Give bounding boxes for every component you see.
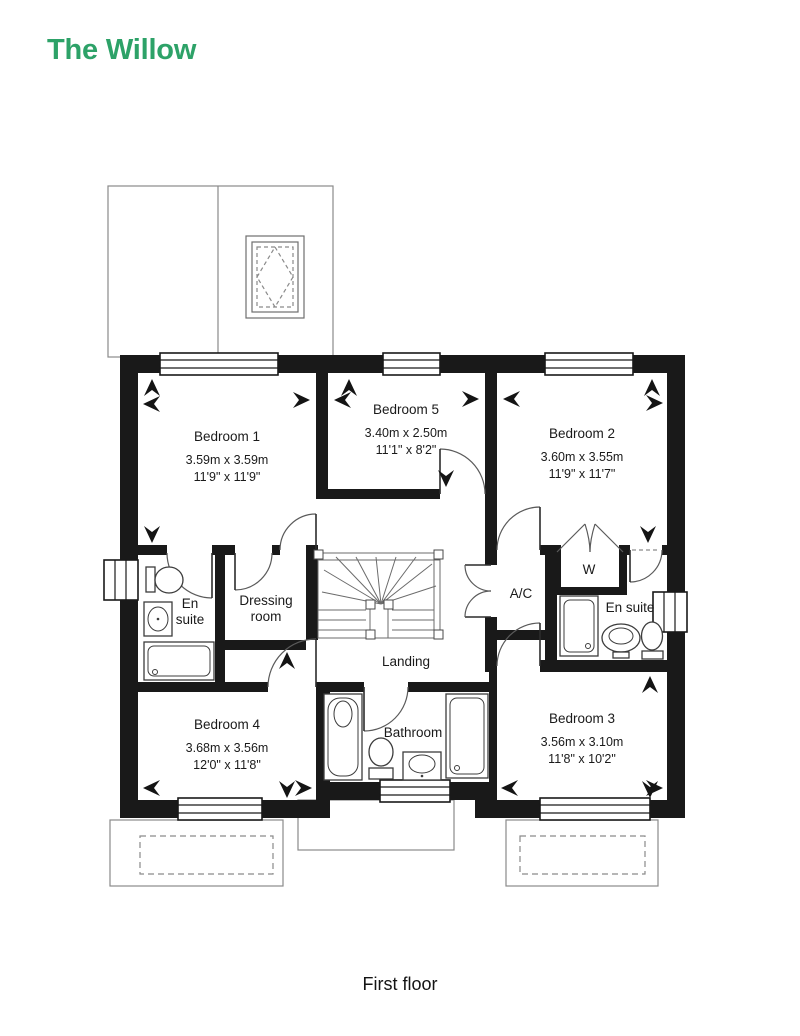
bathroom-shower-symbol (446, 694, 488, 778)
window-bedroom4 (178, 798, 262, 820)
bedroom5-imperial: 11'1" x 8'2" (376, 443, 437, 457)
bedroom5-metric: 3.40m x 2.50m (365, 426, 448, 440)
door-ensuite-right (630, 550, 662, 582)
bedroom3-imperial: 11'8" x 10'2" (548, 752, 616, 766)
window-bedroom2 (545, 353, 633, 375)
ensuite-right-shower-symbol (560, 596, 598, 656)
bedroom1-imperial: 11'9" x 11'9" (194, 470, 261, 484)
door-dressing-room (235, 553, 272, 590)
bedroom2-imperial: 11'9" x 11'7" (549, 467, 616, 481)
ensuite-left-shower-symbol (144, 642, 214, 680)
bedroom4-label: Bedroom 4 (194, 717, 261, 732)
ensuite-right-toilet-symbol (642, 622, 664, 659)
door-bedroom2 (497, 507, 540, 550)
ensuite-left-label-line2: suite (176, 612, 205, 627)
airing-cupboard-label: A/C (510, 586, 533, 601)
bathroom-label: Bathroom (384, 725, 443, 740)
floor-caption: First floor (0, 974, 800, 995)
roof-outline (108, 186, 333, 357)
bedroom4-metric: 3.68m x 3.56m (186, 741, 269, 755)
bedroom4-imperial: 12'0" x 11'8" (193, 758, 261, 772)
ensuite-left-basin-symbol (144, 602, 172, 636)
bedroom1-metric: 3.59m x 3.59m (186, 453, 269, 467)
bedroom1-label: Bedroom 1 (194, 429, 260, 444)
ensuite-right-basin-symbol (602, 624, 640, 658)
window-ensuite-left (104, 560, 138, 600)
window-bedroom5 (383, 353, 440, 375)
dressing-room-label-line2: room (251, 609, 282, 624)
bathroom-bath-symbol (324, 694, 362, 780)
bathroom-toilet-symbol (369, 738, 393, 779)
bathroom-basin-symbol (403, 752, 441, 780)
bedroom3-label: Bedroom 3 (549, 711, 615, 726)
door-bedroom1 (280, 514, 316, 550)
window-bedroom1 (160, 353, 278, 375)
landing-label: Landing (382, 654, 430, 669)
bedroom2-label: Bedroom 2 (549, 426, 615, 441)
ensuite-right-label: En suite (606, 600, 655, 615)
bedroom5-label: Bedroom 5 (373, 402, 439, 417)
door-bedroom3 (497, 623, 540, 666)
bedroom2-metric: 3.60m x 3.55m (541, 450, 624, 464)
floorplan: Bedroom 1 3.59m x 3.59m 11'9" x 11'9" Be… (0, 0, 800, 1036)
door-bedroom5 (440, 449, 485, 494)
bedroom3-metric: 3.56m x 3.10m (541, 735, 624, 749)
dressing-room-label-line1: Dressing (239, 593, 292, 608)
window-bedroom3 (540, 798, 650, 820)
door-airing-cupboard (465, 565, 491, 617)
door-wardrobe (557, 524, 623, 552)
ensuite-left-toilet-symbol (146, 567, 183, 593)
stairs (314, 550, 443, 639)
window-bathroom (380, 780, 450, 802)
wardrobe-label: W (583, 562, 596, 577)
ensuite-left-label-line1: En (182, 596, 199, 611)
